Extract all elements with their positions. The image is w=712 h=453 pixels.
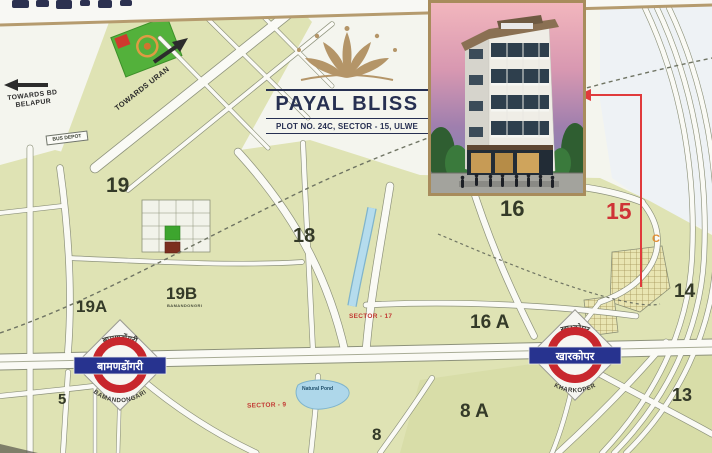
site-plot-c-label: C xyxy=(652,234,660,245)
station-badge-kharkoper: खारकोपर खारकोपर KHARKOPER xyxy=(517,297,633,413)
sector-14-label: 14 xyxy=(674,282,695,301)
sector-19b-label: 19B xyxy=(166,285,197,302)
logo-rule-top xyxy=(266,89,428,91)
station-name-local: खारकोपर xyxy=(555,349,595,363)
sector-19-label: 19 xyxy=(106,175,129,196)
sector-13-label: 13 xyxy=(672,386,692,404)
project-address: PLOT NO. 24C, SECTOR - 15, ULWE xyxy=(258,122,436,131)
building-illustration xyxy=(431,3,583,193)
sector-8-label: 8 xyxy=(372,426,381,443)
sector-17-tag: SECTOR - 17 xyxy=(349,313,392,320)
sector-18-label: 18 xyxy=(293,226,315,246)
project-name: PAYAL BLISS xyxy=(258,93,436,116)
logo-rule-mid xyxy=(266,118,428,119)
pond-label: Natural Pond xyxy=(302,386,333,392)
map-signboard: TOWARDS URAN TOWARDS BD BELAPUR BUS DEPO… xyxy=(0,0,712,453)
sector-16-label: 16 xyxy=(500,198,524,220)
station-name-local: बामणडोंगरी xyxy=(96,359,144,373)
station-badge-bamandongari: बामणडोंगरी बामणडोंगरी BAMANDONGARI xyxy=(62,307,178,423)
building-render-inset xyxy=(428,0,586,196)
sector-8a-label: 8 A xyxy=(460,402,489,421)
small-plots-19 xyxy=(142,200,210,253)
sector-16a-label: 16 A xyxy=(470,313,509,332)
sector-9-tag: SECTOR - 9 xyxy=(247,401,287,409)
lotus-icon xyxy=(287,26,407,82)
project-logo: PAYAL BLISS PLOT NO. 24C, SECTOR - 15, U… xyxy=(258,26,436,134)
logo-rule-bottom xyxy=(266,133,428,134)
sector-15-label: 15 xyxy=(606,200,632,223)
building-tower xyxy=(459,15,559,187)
